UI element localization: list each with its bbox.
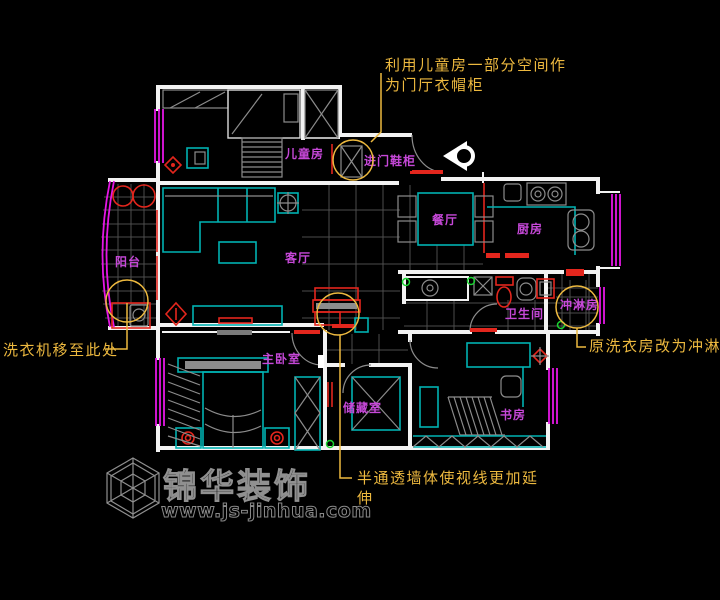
windows (103, 109, 621, 426)
label-balcony: 阳台 (115, 254, 141, 269)
study-desk (467, 343, 530, 367)
label-bathroom: 卫生间 (505, 306, 544, 321)
entry-arrow-icon (443, 141, 473, 171)
label-children-room: 儿童房 (284, 146, 324, 161)
tv (219, 318, 252, 323)
decor-diamond (166, 303, 186, 325)
room-study (413, 343, 549, 447)
floor-plan: 儿童房 进门鞋柜 餐厅 厨房 客厅 阳台 主卧室 储藏室 书房 卫生间 冲淋房 … (0, 0, 720, 600)
label-living: 客厅 (284, 250, 311, 265)
children-rug (242, 138, 282, 177)
children-bed (228, 90, 300, 138)
ceiling-lamp-icon (277, 192, 299, 214)
coffee-table (219, 242, 256, 263)
study-rug (448, 397, 505, 435)
bookshelf (413, 436, 546, 447)
annotation-right: 原洗衣房改为冲淋房 (589, 337, 720, 355)
kitchen-sink-small (504, 184, 521, 201)
annotations: 利用儿童房一部分空间作 为门厅衣帽柜 原洗衣房改为冲淋房 洗衣机移至此处 半通透… (3, 56, 720, 507)
room-master (168, 358, 320, 450)
tv-cabinet (193, 306, 282, 325)
annotation-bottom-left: 洗衣机移至此处 (3, 341, 119, 359)
annotation-bottom-center-1: 半通透墙体使视线更加延 (357, 469, 539, 487)
brand-logo-icon (107, 458, 159, 518)
room-kitchen (487, 183, 594, 255)
annotation-top-2: 为门厅衣帽柜 (385, 76, 484, 94)
label-dining: 餐厅 (432, 212, 458, 227)
watermark: 锦华装饰 www.js-jinhua.com (107, 458, 372, 522)
walls (110, 87, 620, 450)
leader-top (371, 73, 381, 142)
room-living (163, 188, 299, 335)
double-sink-icon (568, 210, 594, 250)
stove-icon (527, 183, 566, 205)
basin-counter (404, 277, 468, 300)
brand-url: www.js-jinhua.com (161, 500, 372, 522)
entry-shoe-cabinet (341, 146, 362, 177)
cad-floorplan-canvas: 儿童房 进门鞋柜 餐厅 厨房 客厅 阳台 主卧室 储藏室 书房 卫生间 冲淋房 … (0, 0, 720, 600)
room-dining (398, 171, 493, 245)
label-kitchen: 厨房 (517, 221, 543, 236)
master-wardrobe (295, 377, 320, 450)
label-master: 主卧室 (262, 351, 301, 366)
label-storage: 储藏室 (343, 400, 382, 415)
room-children (163, 90, 338, 177)
study-chair (501, 376, 521, 397)
plant-icon (113, 186, 133, 206)
label-shower: 冲淋房 (560, 297, 599, 312)
nightstand (265, 428, 289, 448)
label-study: 书房 (500, 407, 526, 422)
pedestal-basin-icon (517, 278, 536, 300)
decor-diamond (165, 157, 181, 173)
study-cabinet (420, 387, 438, 427)
annotation-top-1: 利用儿童房一部分空间作 (385, 56, 567, 74)
